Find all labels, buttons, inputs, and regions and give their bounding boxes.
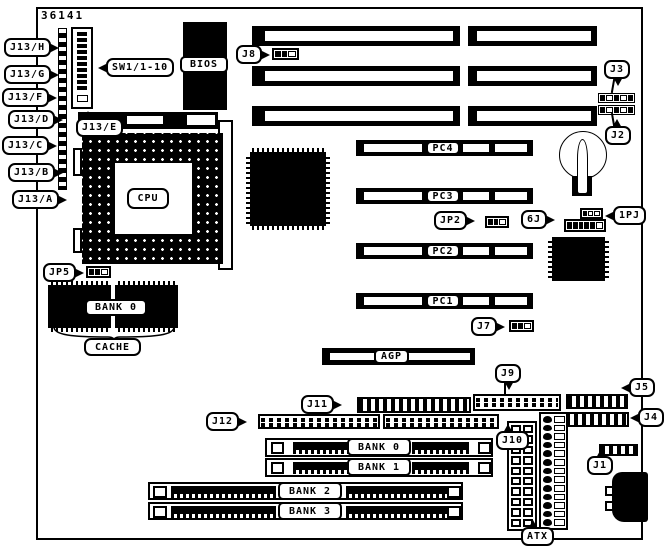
callout-j13b: J13/B [8, 163, 55, 182]
callout-j11: J11 [301, 395, 334, 414]
j13-pin-strip [58, 28, 67, 190]
callout-jp2: JP2 [434, 211, 467, 230]
jumper-strip-6j [564, 219, 606, 232]
jumper-block-j3 [598, 93, 635, 103]
northbridge-chip [250, 152, 326, 226]
callout-j13e: J13/E [76, 118, 123, 137]
header-j10 [383, 414, 499, 429]
isa-slot-3-left [252, 106, 460, 126]
agp-label: AGP [374, 349, 409, 364]
keyboard-connector [612, 472, 648, 522]
isa-slot-3-right [468, 106, 597, 126]
callout-j12: J12 [206, 412, 239, 431]
callout-j13c: J13/C [2, 136, 49, 155]
callout-j13g: J13/G [4, 65, 51, 84]
callout-j2: J2 [605, 126, 631, 145]
callout-1pj: 1PJ [613, 206, 646, 225]
header-j9 [473, 394, 561, 411]
isa-slot-2-left [252, 66, 460, 86]
simm-slot-bank2: BANK 2 [148, 482, 463, 500]
jumper-jp2 [485, 216, 509, 228]
simm-slot-bank0: BANK 0 [265, 438, 493, 457]
part-number: 36141 [41, 9, 84, 22]
simm-slot-bank1: BANK 1 [265, 458, 493, 477]
battery-capsule [577, 139, 588, 194]
bank2-label: BANK 2 [278, 482, 342, 500]
callout-j13a: J13/A [12, 190, 59, 209]
cache-bank0-label: BANK 0 [85, 299, 147, 316]
jumper-1pj [580, 208, 603, 219]
jumper-j7 [509, 320, 534, 332]
pc1-label: PC1 [426, 294, 460, 308]
jumper-j8 [272, 48, 299, 60]
callout-j13d: J13/D [8, 110, 55, 129]
callout-jp5: JP5 [43, 263, 76, 282]
callout-atx: ATX [521, 527, 554, 546]
simm-slot-bank3: BANK 3 [148, 502, 463, 520]
agp-slot: AGP [322, 348, 475, 365]
jumper-block-j2 [598, 105, 635, 115]
cpu-socket: CPU [82, 133, 223, 264]
callout-j4: J4 [638, 408, 664, 427]
cpu-socket-tab-top [73, 148, 82, 176]
keyboard-connector-tab-1 [605, 486, 614, 496]
cpu-socket-tab-bottom [73, 228, 82, 253]
bank0-label: BANK 0 [347, 438, 411, 456]
callout-j5: J5 [629, 378, 655, 397]
bank1-label: BANK 1 [347, 458, 411, 476]
isa-slot-2-right [468, 66, 597, 86]
power-connector-inline [539, 412, 568, 530]
dip-end-box [77, 95, 88, 102]
isa-slot-1-left [252, 26, 460, 46]
callout-j10: J10 [496, 431, 529, 450]
jumper-jp5 [86, 266, 111, 278]
pci-slot-pc1: PC1 [356, 293, 533, 309]
callout-sw1: SW1/1-10 [106, 58, 174, 77]
callout-j1: J1 [587, 456, 613, 475]
keyboard-connector-tab-2 [605, 501, 614, 511]
header-j12 [258, 414, 380, 429]
pc4-label: PC4 [426, 141, 460, 155]
callout-j13f: J13/F [2, 88, 49, 107]
pc2-label: PC2 [426, 244, 460, 258]
connector-j5 [566, 394, 628, 409]
connector-j4 [564, 412, 629, 427]
cpu-label: CPU [127, 188, 169, 209]
motherboard-diagram: 36141 J13/H J13/G J13/F J13/D J13/C J13/… [0, 0, 670, 553]
bank3-label: BANK 3 [278, 502, 342, 520]
callout-j9: J9 [495, 364, 521, 383]
bios-label: BIOS [180, 56, 228, 73]
isa-slot-1-right [468, 26, 597, 46]
callout-6j: 6J [521, 210, 547, 229]
callout-j13h: J13/H [4, 38, 51, 57]
pci-slot-pc4: PC4 [356, 140, 533, 156]
connector-j11 [357, 397, 471, 413]
southbridge-chip [552, 237, 605, 281]
callout-j8: J8 [236, 45, 262, 64]
callout-j3: J3 [604, 60, 630, 79]
cache-label: CACHE [84, 338, 141, 356]
pc3-label: PC3 [426, 189, 460, 203]
pci-slot-pc3: PC3 [356, 188, 533, 204]
pci-slot-pc2: PC2 [356, 243, 533, 259]
sw1-dip-switch [71, 27, 93, 109]
callout-j7: J7 [471, 317, 497, 336]
